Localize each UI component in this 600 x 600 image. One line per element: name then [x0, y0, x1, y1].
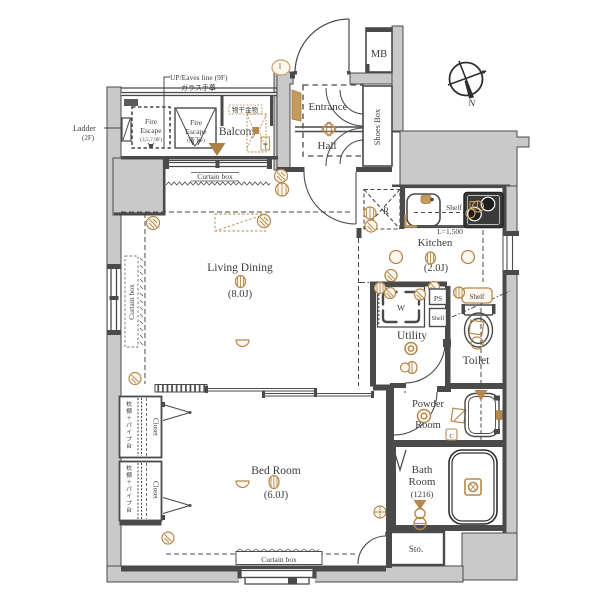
- svg-text:Toilet: Toilet: [463, 355, 490, 367]
- svg-text:Bed Room: Bed Room: [251, 465, 301, 477]
- svg-text:(8.0J): (8.0J): [228, 289, 253, 300]
- svg-text:(6.0J): (6.0J): [264, 490, 289, 501]
- svg-text:Kitchen: Kitchen: [418, 237, 453, 249]
- svg-text:Curtain box: Curtain box: [127, 284, 136, 320]
- svg-text:Shelf: Shelf: [446, 203, 462, 212]
- svg-text:Entrance: Entrance: [308, 101, 347, 113]
- svg-text:Closet: Closet: [152, 418, 160, 436]
- svg-text:Ladder: Ladder: [73, 124, 96, 133]
- svg-text:干: 干: [263, 143, 268, 149]
- svg-text:Fire: Fire: [145, 117, 158, 126]
- svg-text:Escape: Escape: [185, 127, 207, 136]
- svg-text:Curtain box: Curtain box: [261, 555, 297, 564]
- svg-text:C: C: [449, 433, 453, 440]
- svg-text:L=1,500: L=1,500: [437, 227, 463, 236]
- svg-text:Shelf: Shelf: [432, 315, 445, 322]
- svg-text:Fire: Fire: [190, 118, 203, 127]
- svg-text:Shoes Box: Shoes Box: [372, 108, 382, 145]
- svg-text:R: R: [383, 206, 389, 216]
- svg-text:Closet: Closet: [152, 481, 160, 499]
- svg-text:物干金物: 物干金物: [232, 105, 259, 114]
- svg-text:MB: MB: [371, 49, 387, 60]
- svg-text:(2.0J): (2.0J): [424, 263, 449, 274]
- svg-text:Hall: Hall: [318, 140, 337, 152]
- svg-text:Bath: Bath: [412, 464, 433, 476]
- svg-text:(3,5,7,9F): (3,5,7,9F): [140, 136, 162, 143]
- svg-text:Powder: Powder: [412, 399, 445, 410]
- svg-text:(2F): (2F): [82, 134, 95, 142]
- svg-text:(階下F): (階下F): [187, 136, 205, 144]
- svg-text:ガラス手摹: ガラス手摹: [181, 83, 216, 92]
- svg-text:枕棚＋パイプ台: 枕棚＋パイプ台: [126, 464, 132, 514]
- svg-text:(1216): (1216): [411, 489, 434, 499]
- svg-text:Curtain box: Curtain box: [197, 172, 233, 181]
- svg-text:Shelf: Shelf: [470, 293, 485, 301]
- svg-text:枕棚＋パイプ台: 枕棚＋パイプ台: [126, 400, 132, 450]
- svg-text:Sto.: Sto.: [409, 544, 423, 554]
- svg-text:Living Dining: Living Dining: [207, 262, 273, 274]
- svg-text:PS: PS: [434, 294, 442, 303]
- svg-text:W: W: [397, 303, 405, 313]
- svg-text:UP/Eaves line (9F): UP/Eaves line (9F): [170, 73, 228, 82]
- svg-text:Utility: Utility: [397, 330, 427, 342]
- svg-text:Escape: Escape: [140, 126, 162, 135]
- svg-text:Room: Room: [409, 476, 436, 488]
- svg-text:Balcony: Balcony: [219, 126, 258, 138]
